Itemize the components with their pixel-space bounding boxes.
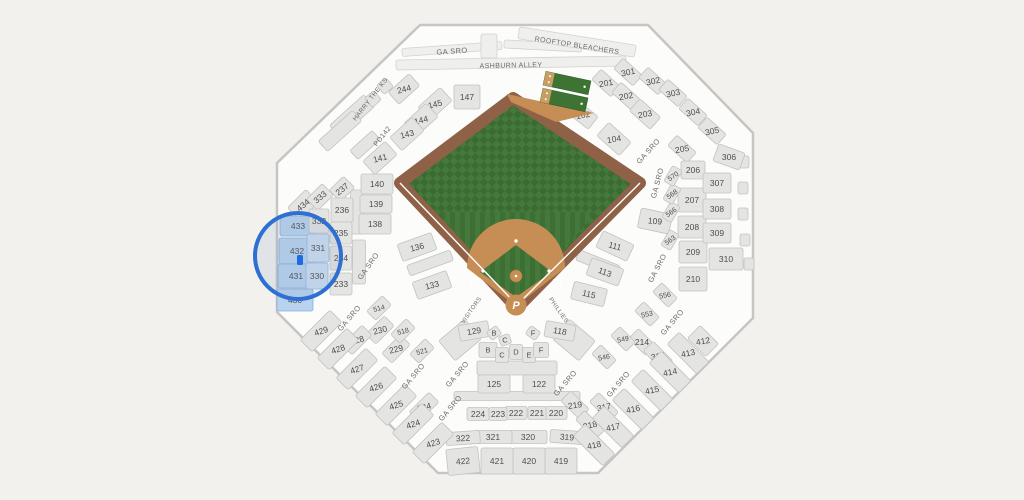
section-309[interactable]: 309: [703, 223, 731, 243]
section-224[interactable]: 224: [467, 408, 489, 421]
section-label: 221: [530, 408, 544, 418]
section-block-shape: [738, 208, 748, 220]
section-label: 214: [635, 337, 649, 347]
section-140[interactable]: 140: [361, 174, 393, 194]
section-D[interactable]: D: [510, 345, 523, 360]
base-marker: [481, 269, 484, 272]
section-label: C: [502, 336, 508, 345]
section-block: [740, 234, 750, 246]
section-209[interactable]: 209: [679, 241, 707, 263]
section-block: [738, 182, 748, 194]
section-220[interactable]: 220: [545, 407, 567, 420]
section-label: 236: [335, 205, 349, 215]
section-F[interactable]: F: [534, 343, 549, 358]
section-label: 421: [490, 456, 504, 466]
section-420[interactable]: 420: [513, 448, 545, 474]
section-label: 208: [685, 222, 699, 232]
section-222[interactable]: 222: [505, 407, 527, 420]
section-label: 306: [722, 152, 736, 162]
base-marker: [547, 269, 550, 272]
section-label: 220: [549, 408, 563, 418]
section-block-shape: [738, 182, 748, 194]
section-label: 219: [567, 399, 583, 411]
section-label: 309: [710, 228, 724, 238]
section-label: B: [491, 329, 496, 338]
section-label: 210: [686, 274, 700, 284]
section-label: 419: [554, 456, 568, 466]
listing-marker[interactable]: [297, 255, 303, 265]
section-label: 321: [486, 432, 500, 442]
section-label: B: [485, 346, 490, 355]
section-206[interactable]: 206: [681, 161, 705, 179]
section-419[interactable]: 419: [545, 448, 577, 474]
section-label: F: [531, 329, 536, 338]
section-label: 310: [719, 254, 733, 264]
seat-map-svg: 4344334324314303333323313302372362352342…: [0, 0, 1024, 500]
section-label: D: [513, 348, 519, 357]
section-422[interactable]: 422: [446, 446, 481, 475]
section-223[interactable]: 223: [489, 408, 507, 421]
section-310[interactable]: 310: [709, 248, 743, 270]
section-label: 138: [368, 219, 382, 229]
section-label: 322: [456, 433, 471, 444]
section-C[interactable]: C: [496, 348, 509, 363]
section-label: 222: [509, 408, 523, 418]
section-125[interactable]: 125: [478, 375, 510, 393]
section-label: 207: [685, 195, 699, 205]
section-block-shape: [477, 361, 557, 375]
section-308[interactable]: 308: [703, 199, 731, 219]
section-label: 307: [710, 178, 724, 188]
section-label: 308: [710, 204, 724, 214]
section-210[interactable]: 210: [679, 267, 707, 291]
section-label: 319: [560, 432, 575, 443]
section-label: F: [539, 346, 544, 355]
section-label: 206: [686, 165, 700, 175]
base-marker: [514, 239, 517, 242]
section-label: 125: [487, 379, 501, 389]
section-320[interactable]: 320: [509, 431, 547, 444]
section-label: 140: [370, 179, 384, 189]
section-label: 224: [471, 409, 485, 419]
section-139[interactable]: 139: [360, 195, 392, 213]
concourse-block-shape: [481, 34, 497, 58]
section-B[interactable]: B: [479, 343, 497, 358]
section-421[interactable]: 421: [481, 448, 513, 474]
section-label: 109: [647, 215, 662, 226]
phillies-logo: P: [512, 300, 520, 312]
section-label: 139: [369, 199, 383, 209]
section-label: 233: [334, 279, 348, 289]
section-307[interactable]: 307: [703, 173, 731, 193]
section-label: 209: [686, 247, 700, 257]
map-text-ashburn-alley: ASHBURN ALLEY: [480, 62, 543, 70]
section-147[interactable]: 147: [454, 85, 480, 109]
section-block: [744, 258, 754, 270]
section-236[interactable]: 236: [331, 198, 353, 222]
section-label: 223: [491, 409, 505, 419]
section-block-shape: [744, 258, 754, 270]
section-block: [738, 208, 748, 220]
section-122[interactable]: 122: [523, 375, 555, 393]
section-label: 420: [522, 456, 536, 466]
section-label: E: [526, 351, 531, 360]
section-208[interactable]: 208: [678, 216, 706, 238]
section-label: C: [499, 351, 505, 360]
stadium-seat-map: 4344334324314303333323313302372362352342…: [0, 0, 1024, 500]
section-block-shape: [740, 234, 750, 246]
section-207[interactable]: 207: [678, 188, 706, 212]
section-block: [477, 361, 557, 375]
section-221[interactable]: 221: [528, 407, 546, 420]
section-138[interactable]: 138: [359, 214, 391, 234]
map-text-label: ASHBURN ALLEY: [480, 62, 543, 70]
concourse-block: [481, 34, 497, 58]
pitchers-rubber: [515, 275, 518, 278]
section-label: 422: [455, 455, 470, 466]
section-label: 320: [521, 432, 535, 442]
section-label: 147: [460, 92, 474, 102]
section-label: 122: [532, 379, 546, 389]
